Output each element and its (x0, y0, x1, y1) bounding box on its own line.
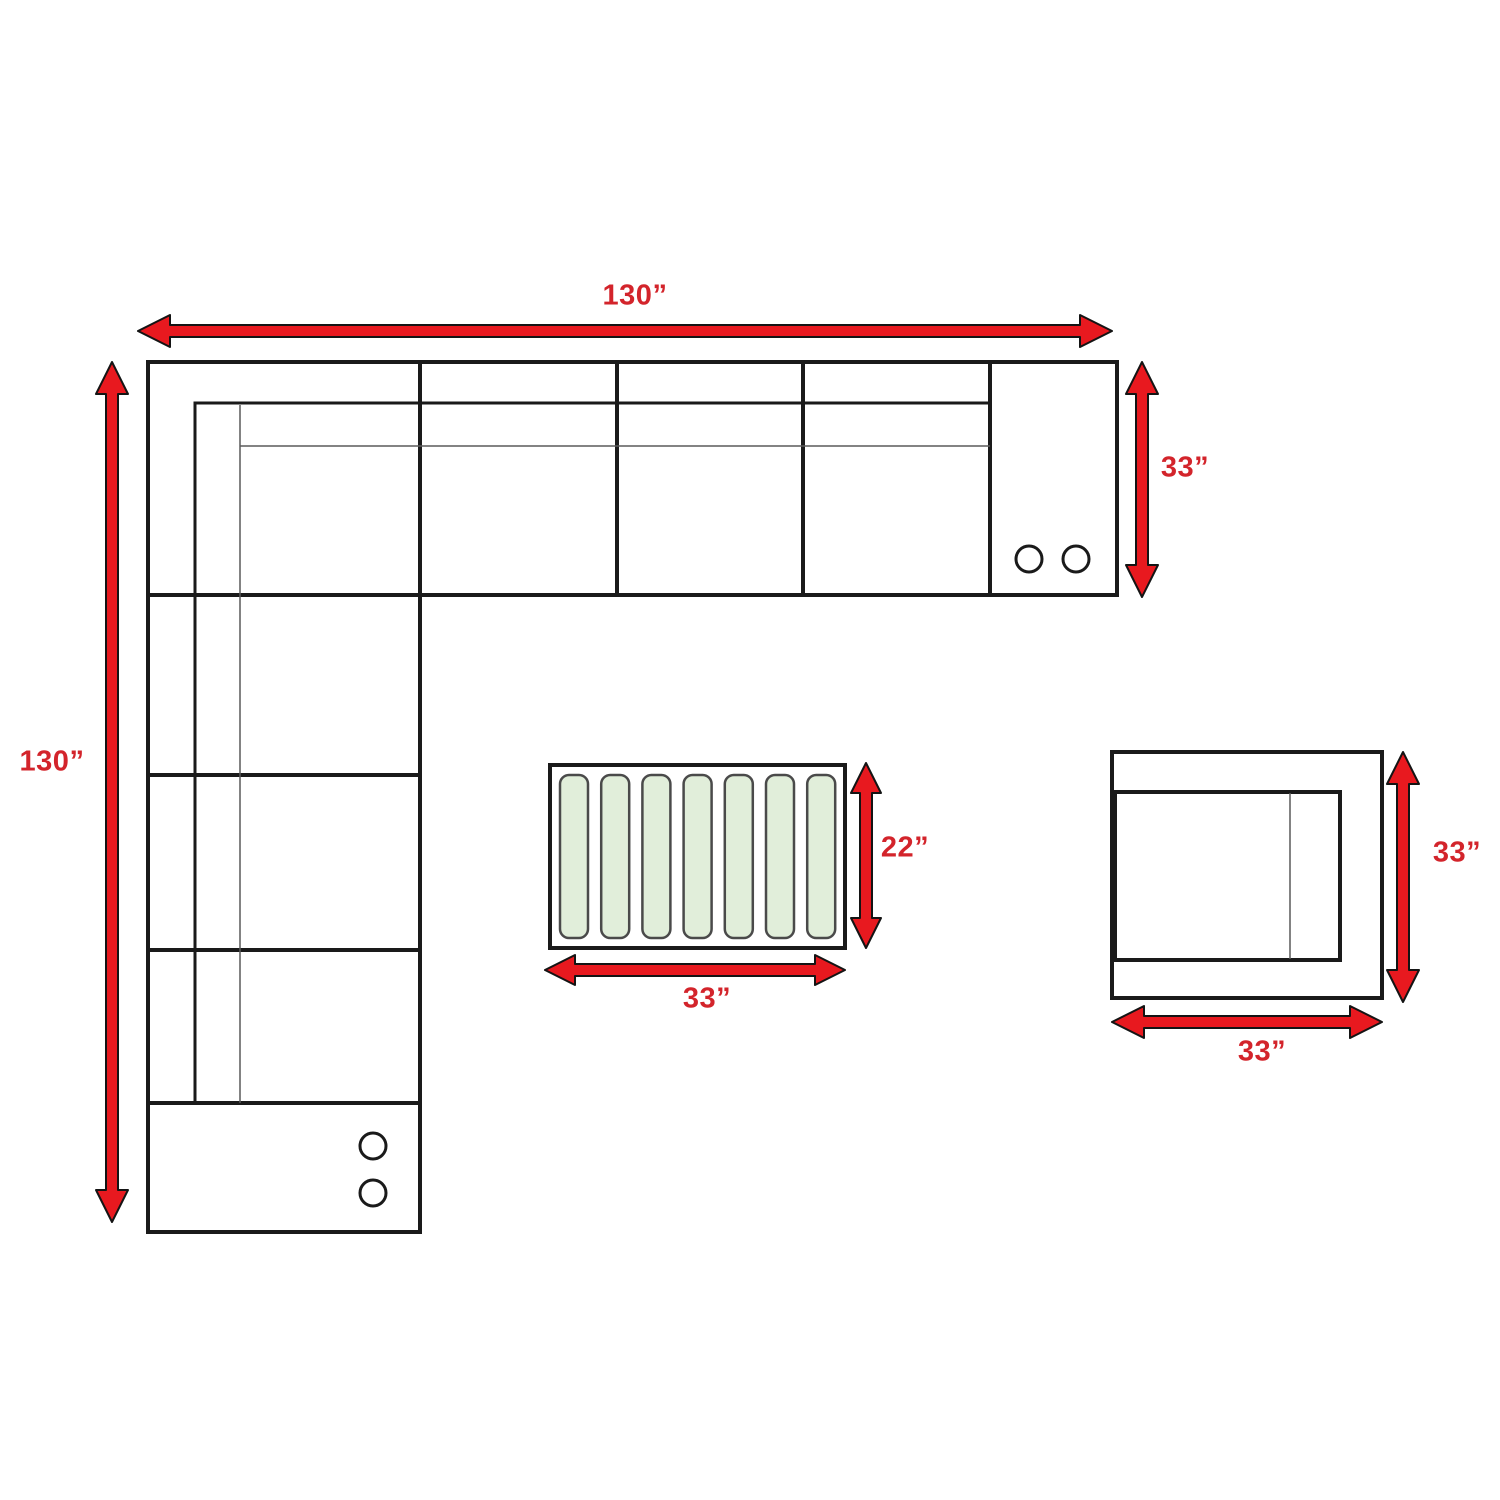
diagram-canvas (0, 0, 1500, 1500)
ottoman-slat (642, 775, 670, 938)
dimension-arrows (96, 315, 1419, 1222)
ottoman-width-label: 33” (683, 983, 731, 1016)
ottoman-slat (560, 775, 588, 938)
ottoman-width-arrow (545, 955, 845, 985)
furniture-dimension-diagram: 130” 130” 33” 22” 33” 33” 33” (0, 0, 1500, 1500)
ottoman-depth-label: 22” (881, 832, 929, 865)
cupholder-circle (1016, 546, 1042, 572)
cupholder-circle (360, 1180, 386, 1206)
sofa-top-run-dividers (420, 362, 990, 595)
sofa-left-column-dividers (148, 595, 420, 1103)
sofa-height-arrow (1126, 362, 1158, 597)
cupholder-circle (1063, 546, 1089, 572)
sofa-depth-arrow (96, 362, 128, 1222)
sofa-width-label: 130” (603, 280, 668, 313)
chair-outline (1112, 752, 1382, 998)
cupholder-circle (360, 1133, 386, 1159)
chair-seat-border (1115, 792, 1340, 960)
ottoman-slat (601, 775, 629, 938)
sofa-height-label: 33” (1161, 452, 1209, 485)
chair-depth-label: 33” (1433, 837, 1481, 870)
ottoman-slat (766, 775, 794, 938)
sofa-depth-label: 130” (20, 746, 85, 779)
chair-width-arrow (1112, 1006, 1382, 1038)
ottoman-slat (807, 775, 835, 938)
ottoman-slat (684, 775, 712, 938)
sofa-width-arrow (138, 315, 1112, 347)
ottoman-depth-arrow (851, 763, 881, 948)
sectional-sofa-outline (148, 362, 1117, 1232)
chair-width-label: 33” (1238, 1036, 1286, 1069)
ottoman-slats (560, 775, 835, 938)
ottoman-outline (550, 765, 845, 948)
chair-depth-arrow (1387, 752, 1419, 1002)
sofa-back-line-thick (195, 403, 990, 1103)
ottoman-slat (725, 775, 753, 938)
